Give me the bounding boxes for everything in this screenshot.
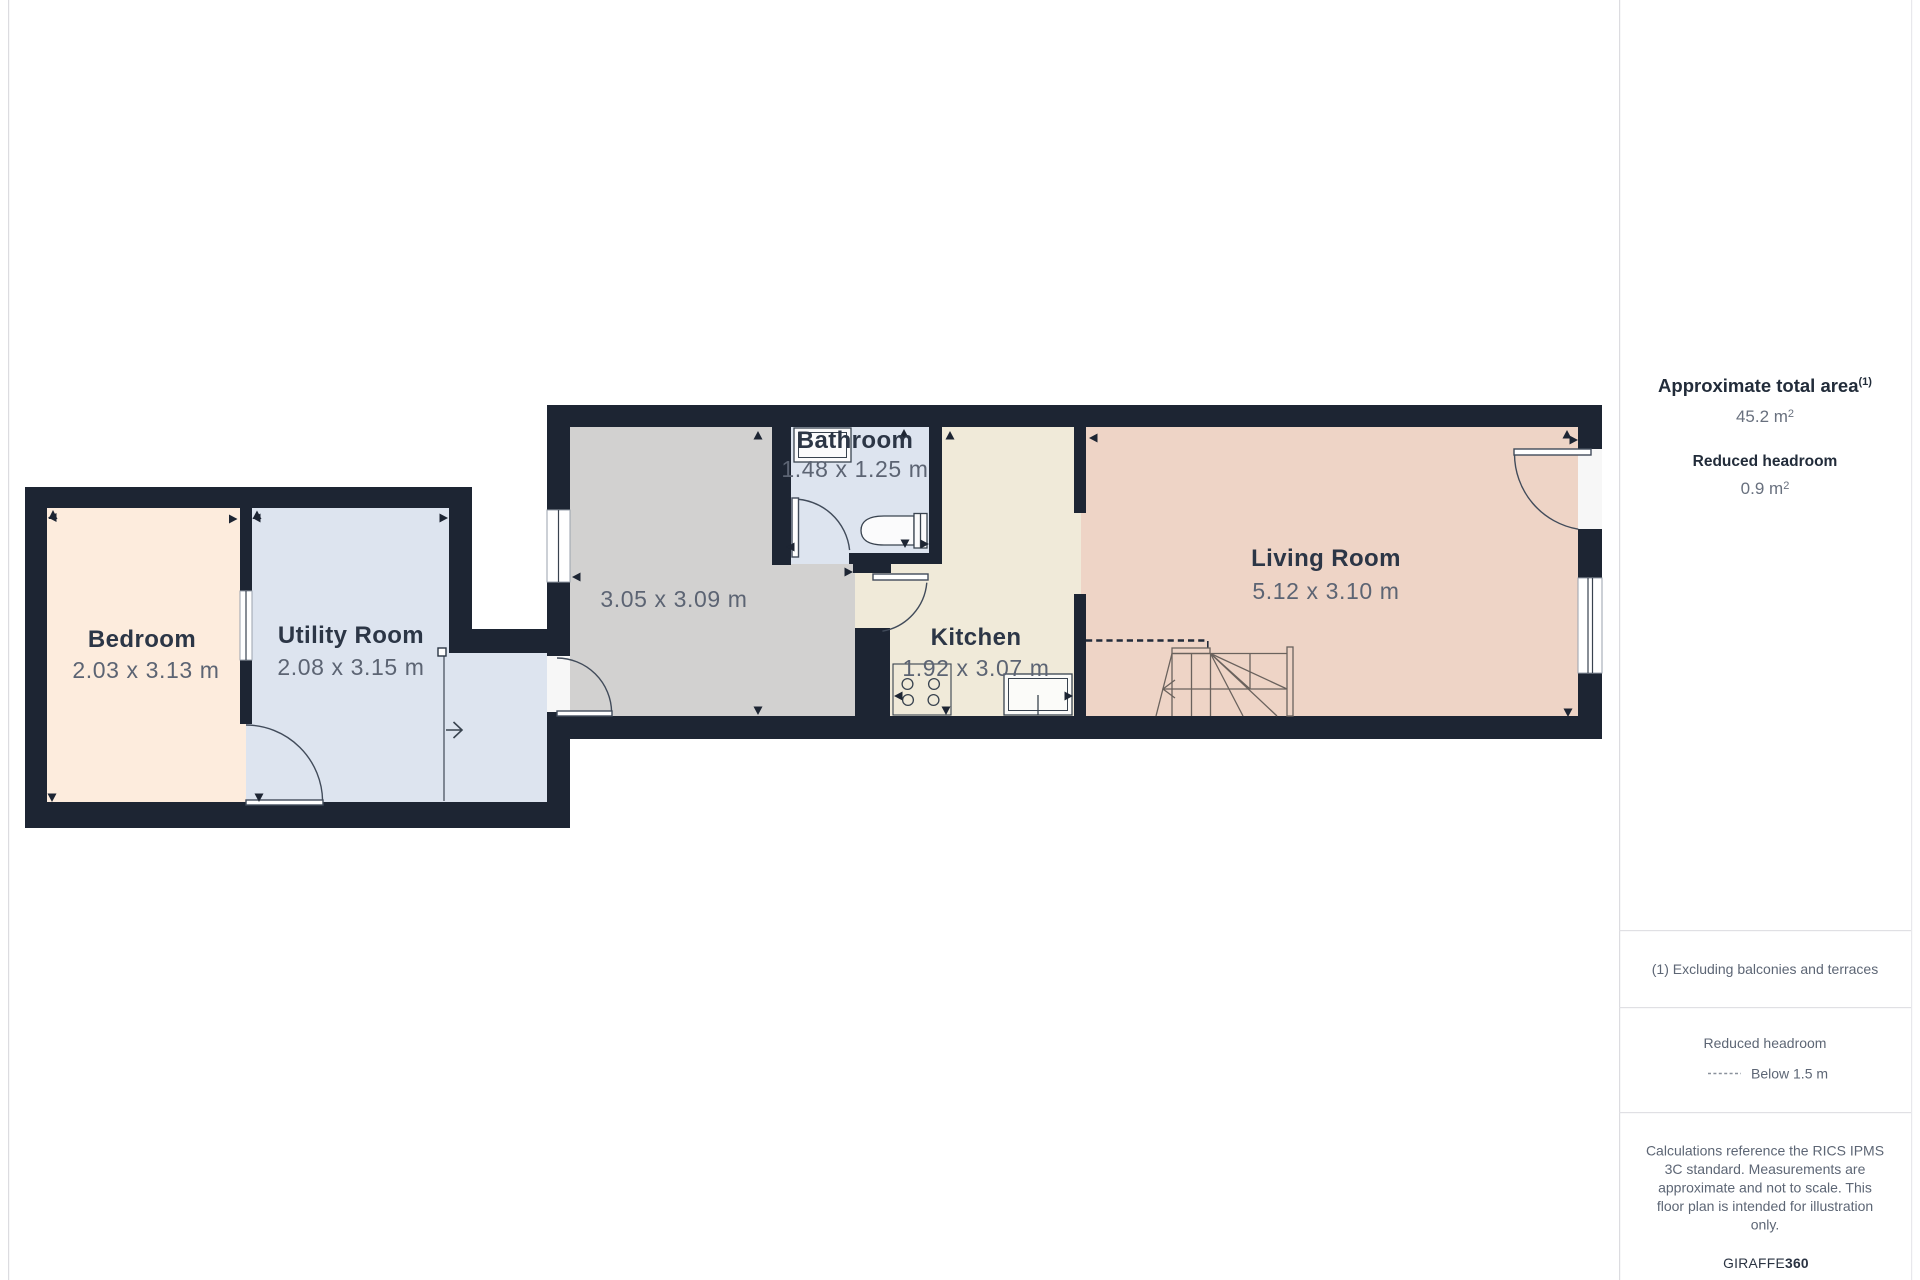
- svg-text:Reduced headroom: Reduced headroom: [1704, 1035, 1827, 1051]
- svg-text:Calculations reference the RIC: Calculations reference the RICS IPMS: [1646, 1143, 1884, 1159]
- svg-text:Reduced headroom: Reduced headroom: [1693, 453, 1838, 470]
- svg-text:0.9 m2: 0.9 m2: [1741, 479, 1790, 498]
- svg-text:3.05 x 3.09 m: 3.05 x 3.09 m: [600, 586, 747, 612]
- svg-text:Below 1.5 m: Below 1.5 m: [1751, 1066, 1828, 1082]
- svg-text:5.12 x 3.10 m: 5.12 x 3.10 m: [1252, 578, 1399, 604]
- svg-text:(1) Excluding balconies and te: (1) Excluding balconies and terraces: [1652, 961, 1878, 977]
- svg-text:2.03 x 3.13 m: 2.03 x 3.13 m: [72, 657, 219, 683]
- svg-text:floor plan is intended for ill: floor plan is intended for illustration: [1657, 1198, 1873, 1214]
- svg-text:1.48 x 1.25 m: 1.48 x 1.25 m: [781, 456, 928, 482]
- svg-text:GIRAFFE360: GIRAFFE360: [1723, 1256, 1809, 1271]
- svg-text:Utility Room: Utility Room: [278, 622, 424, 649]
- svg-text:45.2 m2: 45.2 m2: [1736, 407, 1794, 426]
- svg-text:3C standard. Measurements are: 3C standard. Measurements are: [1665, 1161, 1866, 1177]
- svg-text:approximate and not to scale.: approximate and not to scale. This: [1658, 1180, 1872, 1196]
- svg-text:Bathroom: Bathroom: [797, 427, 914, 454]
- svg-text:Bedroom: Bedroom: [88, 626, 196, 653]
- svg-text:2.08 x 3.15 m: 2.08 x 3.15 m: [277, 654, 424, 680]
- svg-text:Approximate total area(1): Approximate total area(1): [1658, 375, 1872, 396]
- svg-text:Living Room: Living Room: [1251, 545, 1401, 572]
- svg-text:Kitchen: Kitchen: [931, 624, 1022, 651]
- svg-text:only.: only.: [1751, 1217, 1780, 1233]
- svg-text:1.92 x 3.07 m: 1.92 x 3.07 m: [902, 655, 1049, 681]
